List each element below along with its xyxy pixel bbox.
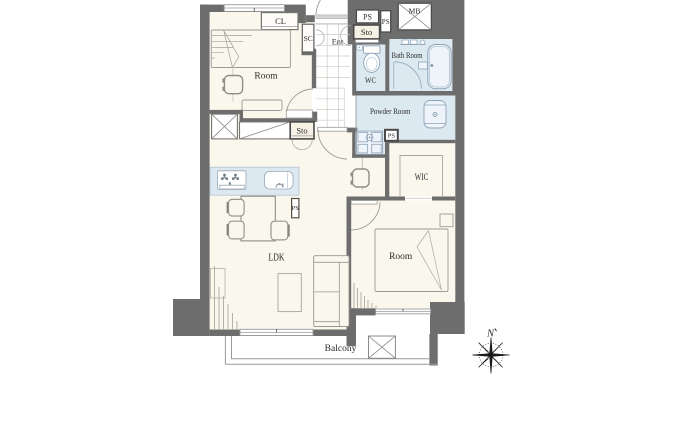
svg-text:PS: PS [388, 133, 396, 140]
svg-text:Powder Room: Powder Room [370, 107, 411, 116]
svg-text:LDK: LDK [269, 252, 286, 263]
svg-text:Room: Room [389, 252, 413, 262]
svg-text:MB: MB [409, 7, 421, 16]
svg-text:PS: PS [382, 18, 390, 26]
svg-text:Ent: Ent [332, 37, 344, 47]
svg-text:PS: PS [363, 12, 372, 21]
svg-text:Sto: Sto [361, 27, 372, 37]
svg-text:SC: SC [304, 34, 313, 43]
svg-text:Bath Room: Bath Room [392, 51, 424, 60]
svg-text:WC: WC [365, 75, 376, 85]
svg-text:CL: CL [275, 16, 286, 26]
svg-text:Sto: Sto [296, 126, 307, 136]
svg-text:PS: PS [292, 205, 300, 212]
svg-text:WIC: WIC [415, 172, 429, 182]
svg-text:Room: Room [254, 72, 278, 82]
svg-text:Balcony: Balcony [325, 344, 357, 354]
svg-text:N: N [486, 329, 495, 340]
